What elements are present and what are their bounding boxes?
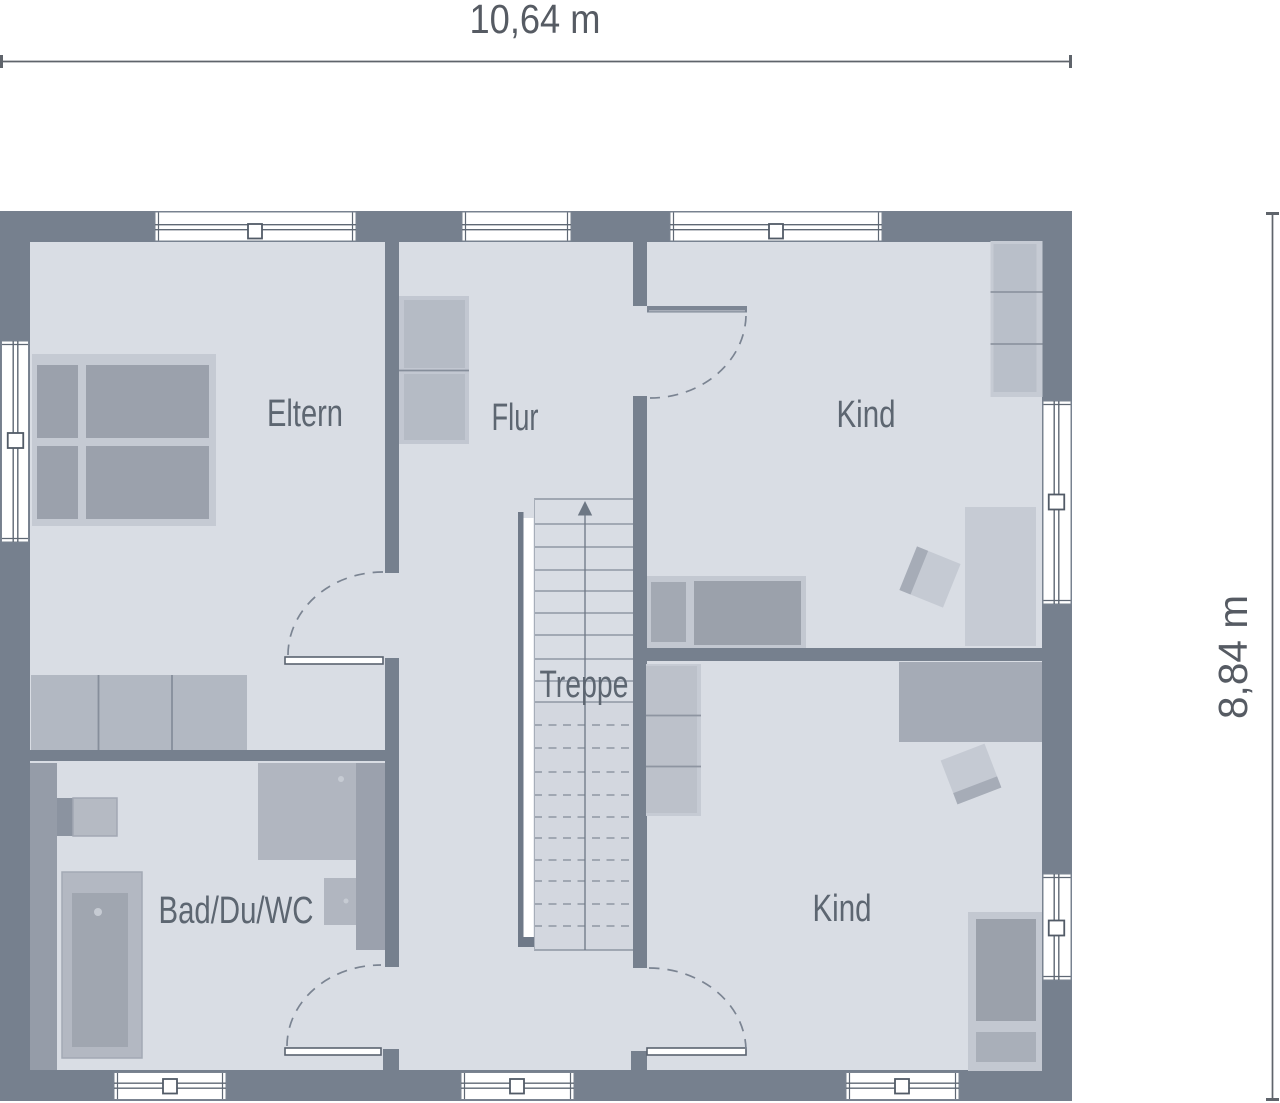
svg-text:8,84 m: 8,84 m [1210, 595, 1256, 719]
svg-text:Eltern: Eltern [267, 393, 343, 435]
svg-text:Treppe: Treppe [540, 664, 629, 706]
svg-text:Kind: Kind [813, 888, 872, 930]
svg-text:Flur: Flur [492, 397, 539, 439]
svg-text:Bad/Du/WC: Bad/Du/WC [159, 890, 314, 932]
svg-text:10,64 m: 10,64 m [470, 0, 601, 42]
svg-text:Kind: Kind [837, 394, 896, 436]
